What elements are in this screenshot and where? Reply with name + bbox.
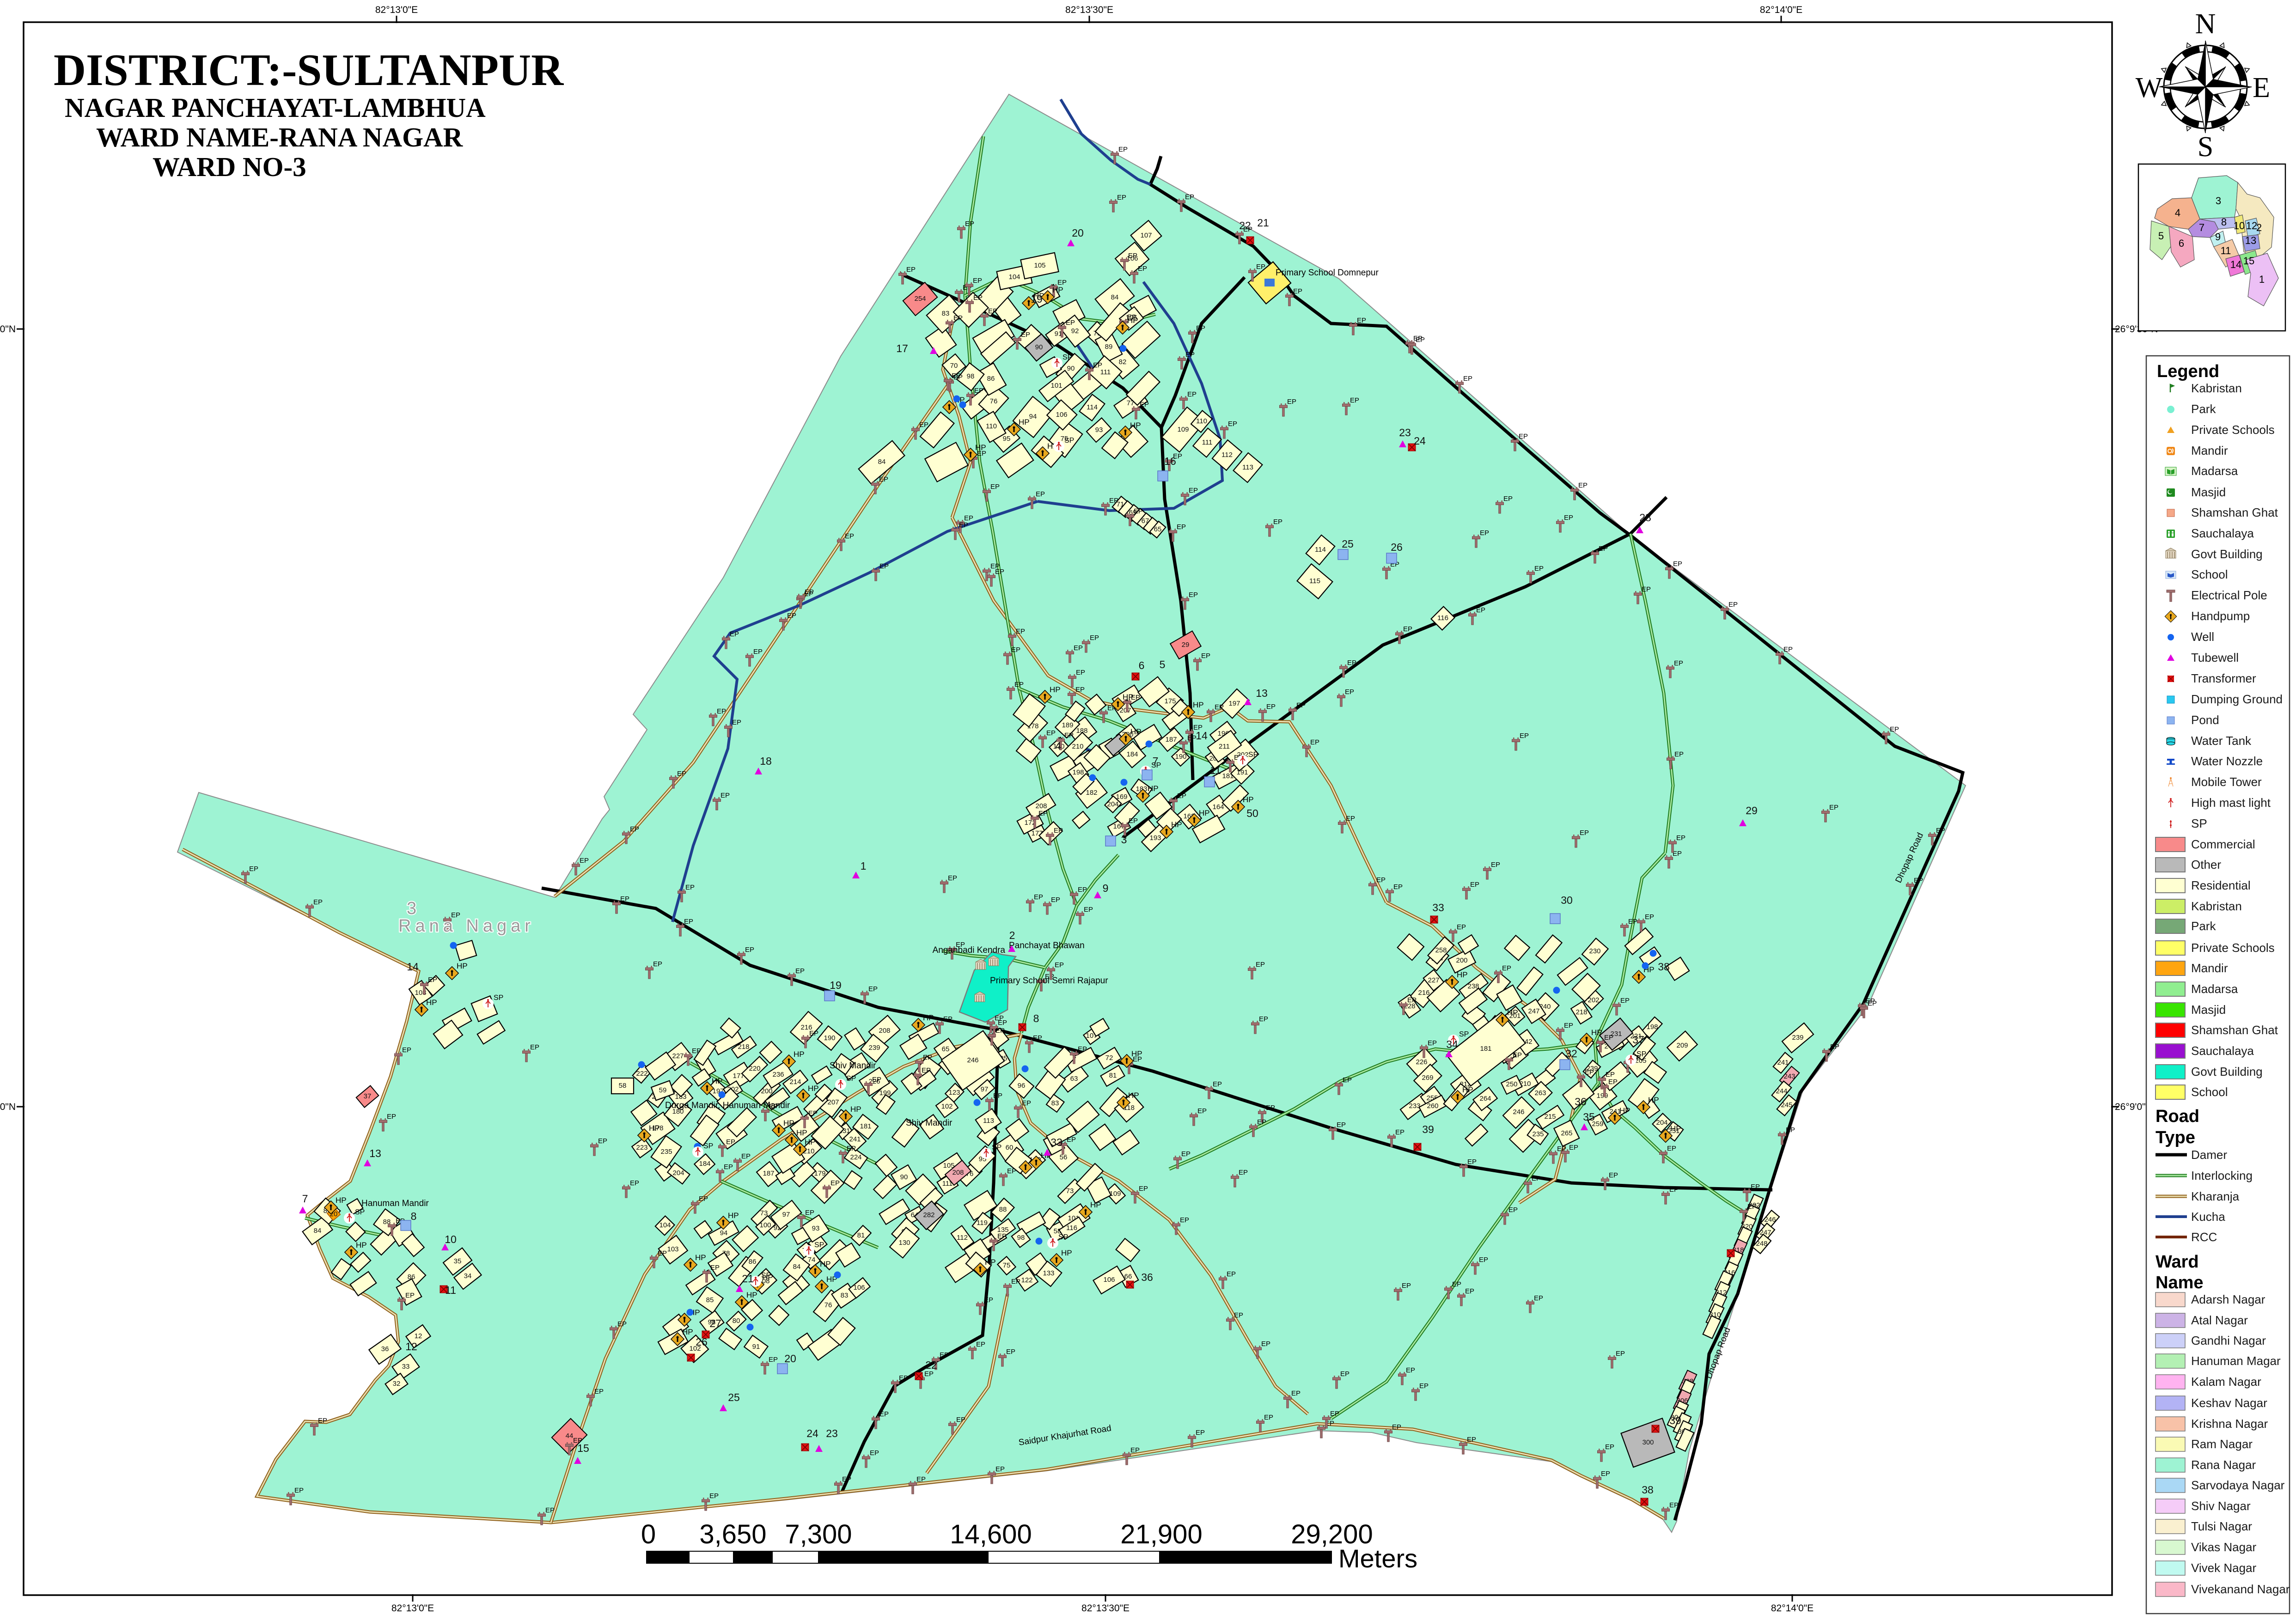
svg-text:28: 28 (1639, 512, 1651, 524)
svg-text:116: 116 (1437, 614, 1448, 622)
svg-text:S: S (2198, 131, 2213, 163)
svg-text:1: 1 (2259, 274, 2265, 285)
svg-text:School: School (2191, 567, 2228, 581)
svg-text:Private Schools: Private Schools (2191, 423, 2275, 437)
svg-text:NAGAR PANCHAYAT-LAMBHUA: NAGAR PANCHAYAT-LAMBHUA (65, 92, 486, 123)
svg-text:80: 80 (733, 1317, 740, 1325)
svg-text:Shiv Nagar: Shiv Nagar (2191, 1499, 2251, 1513)
svg-text:33: 33 (1432, 902, 1444, 914)
svg-text:227: 227 (672, 1052, 684, 1060)
svg-text:244: 244 (1776, 1087, 1787, 1095)
svg-text:Primary School Semri Rajapur: Primary School Semri Rajapur (990, 976, 1108, 986)
svg-text:Ward: Ward (2156, 1252, 2199, 1272)
svg-text:111: 111 (1202, 439, 1213, 446)
svg-text:215: 215 (1544, 1113, 1556, 1121)
svg-text:133: 133 (1043, 1269, 1054, 1277)
svg-text:182: 182 (1086, 789, 1097, 797)
svg-text:26: 26 (1391, 541, 1403, 553)
svg-text:104: 104 (1008, 273, 1020, 281)
svg-text:Shiv Mandir: Shiv Mandir (906, 1118, 953, 1128)
svg-text:20: 20 (784, 1353, 796, 1365)
svg-text:5: 5 (1160, 658, 1166, 670)
svg-text:164: 164 (1212, 803, 1224, 811)
svg-text:24: 24 (1414, 435, 1426, 447)
svg-text:8: 8 (2221, 216, 2227, 228)
svg-text:214: 214 (789, 1078, 801, 1086)
svg-text:233: 233 (1409, 1102, 1420, 1110)
svg-text:37: 37 (1632, 1034, 1644, 1046)
svg-text:209: 209 (1676, 1042, 1688, 1049)
svg-text:59: 59 (659, 1086, 667, 1094)
svg-text:14: 14 (2230, 259, 2241, 270)
svg-text:Kucha: Kucha (2191, 1210, 2225, 1224)
svg-text:3: 3 (407, 899, 416, 918)
svg-text:112: 112 (1221, 451, 1233, 459)
svg-text:190: 190 (824, 1034, 835, 1042)
svg-text:32: 32 (1565, 1048, 1577, 1060)
svg-text:75: 75 (1003, 1261, 1011, 1269)
svg-text:184: 184 (1126, 750, 1138, 758)
svg-text:202: 202 (1588, 996, 1599, 1004)
svg-text:200: 200 (1456, 957, 1467, 964)
svg-text:32: 32 (393, 1380, 401, 1388)
svg-text:7: 7 (1153, 755, 1159, 767)
svg-text:14: 14 (407, 961, 419, 973)
svg-text:6: 6 (2179, 238, 2184, 249)
svg-text:13: 13 (2245, 235, 2256, 246)
svg-text:227: 227 (1428, 976, 1439, 984)
svg-text:Residential: Residential (2191, 878, 2251, 892)
svg-text:111: 111 (1100, 368, 1111, 376)
svg-text:Kharanja: Kharanja (2191, 1189, 2240, 1203)
svg-text:208: 208 (1035, 802, 1047, 810)
svg-text:Sarvodaya Nagar: Sarvodaya Nagar (2191, 1478, 2285, 1492)
svg-text:265: 265 (1561, 1129, 1572, 1137)
svg-text:Tulsi Nagar: Tulsi Nagar (2191, 1519, 2252, 1533)
svg-text:Atal Nagar: Atal Nagar (2191, 1313, 2248, 1327)
svg-text:22: 22 (1239, 219, 1251, 232)
svg-text:0: 0 (641, 1519, 656, 1549)
svg-text:Masjid: Masjid (2191, 485, 2226, 499)
svg-text:Commercial: Commercial (2191, 837, 2255, 851)
svg-text:187: 187 (1165, 736, 1177, 743)
svg-text:Meters: Meters (1338, 1544, 1417, 1573)
svg-text:106: 106 (1103, 1276, 1115, 1284)
svg-text:241: 241 (1777, 1059, 1789, 1066)
svg-text:27: 27 (709, 1317, 721, 1329)
svg-text:6: 6 (1139, 659, 1145, 671)
svg-text:86: 86 (749, 1258, 757, 1266)
svg-text:Ram Nagar: Ram Nagar (2191, 1437, 2253, 1451)
svg-text:73: 73 (1066, 1187, 1074, 1195)
svg-text:204: 204 (672, 1169, 684, 1177)
svg-text:Mobile Tower: Mobile Tower (2191, 775, 2262, 789)
svg-text:Keshav Nagar: Keshav Nagar (2191, 1396, 2267, 1410)
svg-text:12: 12 (2246, 220, 2257, 232)
svg-text:246: 246 (1764, 1216, 1776, 1224)
svg-text:Park: Park (2191, 402, 2216, 416)
svg-text:1: 1 (861, 860, 867, 872)
svg-text:84: 84 (1111, 293, 1119, 301)
svg-text:44: 44 (566, 1432, 574, 1440)
svg-text:115: 115 (1309, 577, 1320, 585)
svg-text:199: 199 (1596, 1092, 1608, 1100)
svg-text:98: 98 (967, 372, 975, 380)
svg-text:82°13'30"E: 82°13'30"E (1065, 5, 1113, 15)
svg-text:13: 13 (369, 1147, 381, 1159)
svg-text:86: 86 (987, 375, 995, 383)
svg-text:Hanuman Magar: Hanuman Magar (2191, 1354, 2281, 1368)
svg-text:Shamshan Ghat: Shamshan Ghat (2191, 1023, 2278, 1037)
svg-text:82: 82 (1119, 358, 1127, 366)
svg-text:Water Tank: Water Tank (2191, 734, 2252, 748)
svg-text:Durga Mandir, Hanuman Mandir: Durga Mandir, Hanuman Mandir (665, 1101, 790, 1110)
svg-text:83: 83 (841, 1292, 849, 1299)
svg-text:236: 236 (772, 1071, 784, 1079)
svg-text:97: 97 (981, 1085, 989, 1093)
svg-text:93: 93 (1095, 426, 1103, 434)
svg-text:37: 37 (364, 1092, 372, 1100)
svg-text:82°14'0"E: 82°14'0"E (1760, 5, 1802, 15)
svg-text:247: 247 (1528, 1007, 1539, 1015)
svg-text:207: 207 (827, 1098, 839, 1106)
svg-text:246: 246 (1513, 1108, 1524, 1116)
svg-text:RCC: RCC (2191, 1230, 2217, 1244)
svg-text:N: N (2195, 8, 2216, 40)
svg-text:260: 260 (1427, 1102, 1438, 1110)
svg-text:36: 36 (1141, 1271, 1153, 1283)
svg-text:Vivek Nagar: Vivek Nagar (2191, 1561, 2256, 1575)
svg-text:15: 15 (577, 1442, 589, 1454)
svg-text:Kabristan: Kabristan (2191, 381, 2242, 395)
svg-text:216: 216 (1418, 989, 1429, 997)
svg-text:245: 245 (1781, 1101, 1792, 1109)
svg-text:15: 15 (2243, 255, 2254, 267)
svg-text:Anganbadi Kendra: Anganbadi Kendra (933, 945, 1006, 955)
svg-text:Masjid: Masjid (2191, 1003, 2226, 1017)
svg-text:109: 109 (1177, 426, 1189, 433)
svg-text:11: 11 (2221, 245, 2231, 256)
svg-text:34: 34 (1446, 1038, 1458, 1050)
svg-text:Primary School Domnepur: Primary School Domnepur (1276, 268, 1379, 278)
svg-text:98: 98 (1017, 1234, 1025, 1242)
svg-text:282: 282 (923, 1211, 934, 1219)
svg-text:220: 220 (749, 1065, 760, 1073)
svg-text:3: 3 (1121, 834, 1127, 846)
svg-text:9: 9 (2215, 231, 2221, 243)
svg-text:30: 30 (1561, 894, 1573, 906)
svg-text:210: 210 (1072, 743, 1083, 750)
svg-text:17: 17 (896, 342, 908, 354)
svg-text:School: School (2191, 1085, 2228, 1099)
svg-text:189: 189 (1062, 721, 1073, 729)
svg-text:Govt Building: Govt Building (2191, 1065, 2263, 1079)
svg-text:96: 96 (1018, 1082, 1026, 1090)
svg-text:92: 92 (1071, 327, 1079, 335)
svg-text:Legend: Legend (2157, 362, 2219, 381)
svg-text:19: 19 (830, 979, 842, 991)
svg-text:16: 16 (1164, 455, 1176, 467)
svg-text:82°14'0"E: 82°14'0"E (1771, 1603, 1814, 1614)
svg-text:Adarsh Nagar: Adarsh Nagar (2191, 1292, 2265, 1306)
svg-text:Electrical Pole: Electrical Pole (2191, 588, 2267, 602)
svg-text:Rana Nagar: Rana Nagar (398, 916, 535, 936)
svg-text:Other: Other (2191, 858, 2221, 871)
svg-text:105: 105 (1034, 262, 1045, 269)
svg-text:88: 88 (999, 1206, 1007, 1213)
svg-text:Shamshan Ghat: Shamshan Ghat (2191, 506, 2278, 519)
svg-text:246: 246 (967, 1056, 978, 1064)
svg-text:84: 84 (878, 458, 886, 466)
svg-text:Water Nozzle: Water Nozzle (2191, 754, 2263, 768)
svg-text:90: 90 (1035, 343, 1043, 351)
svg-text:58: 58 (619, 1082, 627, 1090)
svg-text:235: 235 (1532, 1130, 1544, 1138)
svg-text:26°9'0"N: 26°9'0"N (0, 1102, 16, 1112)
svg-text:247: 247 (1759, 1229, 1771, 1237)
svg-text:Gandhi Nagar: Gandhi Nagar (2191, 1334, 2266, 1347)
svg-text:38: 38 (1642, 1484, 1654, 1496)
svg-text:116: 116 (1066, 1224, 1077, 1232)
svg-text:110: 110 (986, 422, 997, 430)
svg-text:35: 35 (1583, 1111, 1595, 1123)
svg-text:Mandir: Mandir (2191, 444, 2228, 457)
svg-text:29: 29 (1182, 641, 1190, 649)
svg-text:3,650: 3,650 (699, 1519, 766, 1549)
svg-text:65: 65 (942, 1045, 950, 1053)
svg-text:82°13'30"E: 82°13'30"E (1081, 1603, 1130, 1614)
svg-text:Madarsa: Madarsa (2191, 982, 2238, 996)
svg-text:84: 84 (793, 1263, 801, 1271)
svg-text:E: E (2253, 72, 2270, 104)
svg-text:82°13'0"E: 82°13'0"E (391, 1603, 434, 1614)
svg-text:25: 25 (1342, 538, 1354, 550)
svg-text:190: 190 (1175, 753, 1186, 761)
svg-text:WARD NO-3: WARD NO-3 (153, 152, 306, 182)
svg-text:Vivekanand Nagar: Vivekanand Nagar (2191, 1582, 2290, 1596)
svg-text:Park: Park (2191, 919, 2216, 933)
svg-text:Private Schools: Private Schools (2191, 941, 2275, 955)
svg-text:235: 235 (660, 1148, 672, 1156)
svg-text:Road: Road (2156, 1107, 2199, 1126)
svg-text:Tubewell: Tubewell (2191, 651, 2239, 664)
svg-text:104: 104 (659, 1221, 671, 1229)
svg-text:20: 20 (1072, 227, 1084, 239)
svg-text:Hanuman Mandir: Hanuman Mandir (361, 1199, 429, 1208)
svg-text:211: 211 (1219, 743, 1230, 750)
svg-text:5: 5 (2158, 230, 2164, 242)
svg-text:83: 83 (1051, 1099, 1059, 1107)
svg-text:39: 39 (1422, 1123, 1434, 1135)
svg-text:114: 114 (1315, 546, 1326, 554)
svg-text:Interlocking: Interlocking (2191, 1169, 2253, 1182)
svg-text:181: 181 (860, 1122, 871, 1130)
svg-text:110: 110 (1196, 417, 1207, 425)
svg-text:63: 63 (1070, 1075, 1078, 1083)
svg-text:222: 222 (636, 1070, 647, 1078)
svg-text:112: 112 (957, 1234, 968, 1242)
svg-text:187: 187 (763, 1170, 774, 1177)
svg-text:WARD NAME-RANA NAGAR: WARD NAME-RANA NAGAR (96, 122, 464, 152)
svg-text:Kalam Nagar: Kalam Nagar (2191, 1375, 2261, 1389)
svg-text:12: 12 (405, 1341, 417, 1353)
svg-text:82°13'0"E: 82°13'0"E (375, 5, 418, 15)
svg-text:21,900: 21,900 (1120, 1519, 1202, 1549)
svg-text:Krishna Nagar: Krishna Nagar (2191, 1417, 2268, 1431)
svg-text:197: 197 (1228, 700, 1240, 707)
svg-text:208: 208 (952, 1169, 964, 1176)
svg-text:248: 248 (1756, 1240, 1767, 1248)
svg-text:50: 50 (1246, 807, 1258, 819)
svg-text:81: 81 (1109, 1072, 1117, 1079)
svg-text:193: 193 (1149, 834, 1161, 842)
svg-text:19: 19 (1031, 293, 1043, 305)
svg-text:21: 21 (742, 1273, 754, 1285)
svg-text:70: 70 (950, 362, 958, 370)
svg-text:113: 113 (983, 1117, 994, 1125)
svg-text:204: 204 (1656, 1119, 1667, 1127)
svg-text:18: 18 (760, 755, 772, 767)
svg-text:36: 36 (381, 1345, 389, 1353)
svg-text:198: 198 (1072, 768, 1084, 776)
svg-text:263: 263 (1534, 1089, 1546, 1097)
svg-text:38: 38 (1658, 961, 1670, 973)
svg-text:Shiv Mandir: Shiv Mandir (830, 1061, 876, 1071)
svg-text:130: 130 (898, 1239, 910, 1247)
svg-text:95: 95 (1003, 435, 1011, 443)
svg-text:Damer: Damer (2191, 1148, 2227, 1162)
svg-text:11: 11 (1210, 764, 1221, 776)
svg-text:24: 24 (806, 1427, 818, 1439)
svg-text:10: 10 (2234, 220, 2245, 232)
svg-text:Govt Building: Govt Building (2191, 547, 2263, 561)
svg-text:250: 250 (1506, 1080, 1517, 1088)
svg-text:94: 94 (720, 1229, 728, 1237)
svg-text:34: 34 (464, 1272, 472, 1280)
svg-text:Pond: Pond (2191, 713, 2219, 727)
svg-text:239: 239 (1792, 1034, 1803, 1042)
svg-text:High mast light: High mast light (2191, 796, 2271, 810)
svg-text:4: 4 (1056, 740, 1062, 752)
svg-text:25: 25 (728, 1391, 740, 1403)
svg-text:76: 76 (990, 397, 998, 405)
svg-text:114: 114 (1087, 403, 1098, 411)
svg-text:84: 84 (314, 1227, 322, 1235)
svg-text:230: 230 (1589, 947, 1600, 955)
svg-text:23: 23 (826, 1427, 838, 1439)
svg-text:89: 89 (1105, 343, 1113, 351)
svg-text:94: 94 (1029, 413, 1037, 420)
svg-text:7,300: 7,300 (785, 1519, 852, 1549)
svg-text:106: 106 (853, 1284, 865, 1292)
svg-text:123: 123 (948, 1089, 960, 1097)
svg-text:60: 60 (1006, 1144, 1014, 1152)
svg-text:264: 264 (1479, 1095, 1491, 1103)
svg-text:7: 7 (2199, 222, 2204, 233)
svg-text:12: 12 (415, 1332, 422, 1340)
svg-text:300: 300 (1642, 1438, 1654, 1446)
svg-text:33: 33 (402, 1363, 410, 1371)
svg-text:184: 184 (699, 1160, 710, 1168)
svg-text:Panchayat Bhawan: Panchayat Bhawan (1009, 941, 1085, 951)
svg-text:W: W (2136, 72, 2163, 104)
svg-text:97: 97 (782, 1211, 790, 1219)
svg-text:Mandir: Mandir (2191, 961, 2228, 975)
svg-text:181: 181 (1480, 1045, 1491, 1053)
svg-text:223: 223 (636, 1144, 647, 1152)
svg-text:204: 204 (1107, 800, 1118, 808)
svg-text:74: 74 (808, 1256, 816, 1264)
svg-text:85: 85 (706, 1296, 714, 1304)
svg-text:4: 4 (2175, 207, 2180, 219)
svg-text:Type: Type (2156, 1128, 2195, 1147)
svg-text:14: 14 (1196, 730, 1208, 742)
svg-text:113: 113 (1242, 463, 1253, 471)
svg-text:33: 33 (1050, 1136, 1063, 1148)
svg-text:258: 258 (1435, 946, 1447, 954)
svg-text:26: 26 (696, 1336, 708, 1348)
svg-text:72: 72 (1105, 1054, 1113, 1062)
svg-text:SP: SP (2191, 817, 2207, 830)
svg-text:3: 3 (2216, 195, 2221, 207)
svg-text:13: 13 (1256, 687, 1268, 699)
svg-text:90: 90 (900, 1173, 908, 1181)
svg-text:DISTRICT:-SULTANPUR: DISTRICT:-SULTANPUR (54, 45, 564, 95)
svg-text:35: 35 (454, 1257, 462, 1265)
svg-text:76: 76 (824, 1301, 832, 1309)
svg-text:81: 81 (857, 1231, 865, 1239)
svg-text:103: 103 (667, 1245, 678, 1253)
svg-text:175: 175 (1164, 697, 1176, 705)
svg-text:91: 91 (752, 1343, 760, 1351)
svg-text:218: 218 (738, 1043, 749, 1051)
svg-text:26°9'30"N: 26°9'30"N (0, 324, 16, 335)
svg-text:198: 198 (1646, 1023, 1658, 1031)
svg-text:65: 65 (1154, 525, 1162, 533)
svg-text:200: 200 (761, 1087, 772, 1095)
svg-text:21: 21 (1257, 217, 1269, 229)
svg-text:239: 239 (868, 1044, 880, 1052)
svg-text:10: 10 (445, 1233, 457, 1245)
svg-text:243: 243 (1783, 1073, 1795, 1080)
svg-text:Name: Name (2156, 1273, 2204, 1292)
svg-text:14,600: 14,600 (950, 1519, 1032, 1549)
svg-text:Handpump: Handpump (2191, 609, 2250, 623)
svg-text:109: 109 (1109, 1190, 1121, 1198)
svg-text:241: 241 (849, 1135, 861, 1143)
svg-text:56: 56 (1060, 1153, 1068, 1161)
svg-text:122: 122 (1021, 1276, 1032, 1284)
svg-text:7: 7 (302, 1193, 308, 1205)
svg-text:102: 102 (941, 1103, 953, 1110)
svg-text:36: 36 (1575, 1096, 1587, 1108)
svg-text:39: 39 (1669, 1414, 1681, 1426)
svg-text:119: 119 (977, 1219, 988, 1227)
svg-text:224: 224 (850, 1153, 861, 1161)
svg-text:254: 254 (914, 295, 926, 303)
svg-text:Well: Well (2191, 630, 2214, 644)
svg-text:101: 101 (1050, 382, 1062, 390)
svg-text:9: 9 (1103, 882, 1109, 894)
svg-text:Sauchalaya: Sauchalaya (2191, 1044, 2254, 1058)
svg-text:Rana Nagar: Rana Nagar (2191, 1458, 2256, 1472)
svg-text:8: 8 (1033, 1012, 1039, 1024)
svg-text:Madarsa: Madarsa (2191, 464, 2238, 478)
svg-text:Dumping Ground: Dumping Ground (2191, 692, 2283, 706)
svg-text:29: 29 (1746, 804, 1758, 817)
svg-text:106: 106 (1056, 411, 1067, 419)
svg-text:23: 23 (1399, 427, 1411, 439)
